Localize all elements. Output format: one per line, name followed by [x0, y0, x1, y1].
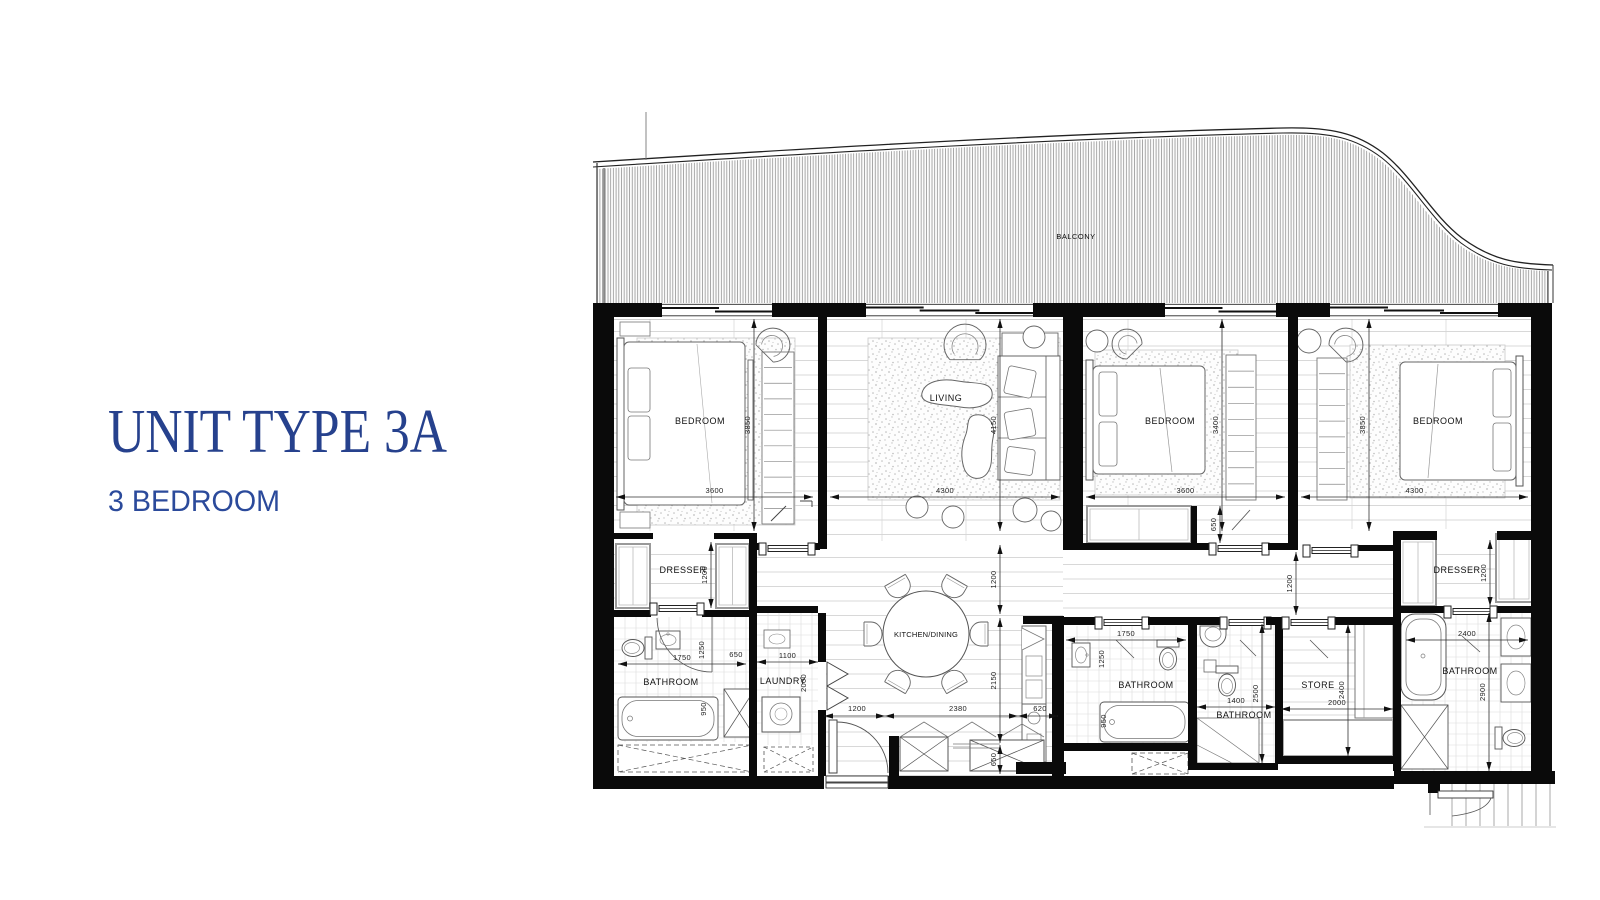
svg-text:1200: 1200 [1479, 564, 1488, 582]
svg-text:BEDROOM: BEDROOM [1145, 416, 1195, 426]
svg-text:1250: 1250 [1097, 650, 1106, 668]
svg-text:1400: 1400 [1227, 696, 1245, 705]
svg-text:2000: 2000 [799, 674, 808, 692]
svg-text:3850: 3850 [743, 416, 752, 434]
svg-text:4300: 4300 [936, 486, 954, 495]
svg-text:3850: 3850 [1358, 416, 1367, 434]
svg-text:BEDROOM: BEDROOM [675, 416, 725, 426]
svg-text:1750: 1750 [1117, 629, 1135, 638]
svg-text:650: 650 [1209, 518, 1218, 531]
svg-text:BEDROOM: BEDROOM [1413, 416, 1463, 426]
svg-text:3400: 3400 [1211, 416, 1220, 434]
svg-text:3600: 3600 [1177, 486, 1195, 495]
svg-text:2380: 2380 [949, 704, 967, 713]
svg-text:BATHROOM: BATHROOM [1118, 680, 1173, 690]
svg-text:2500: 2500 [1251, 685, 1260, 703]
svg-text:3600: 3600 [706, 486, 724, 495]
svg-text:BATHROOM: BATHROOM [1216, 710, 1271, 720]
svg-text:2900: 2900 [1478, 683, 1487, 701]
svg-text:950: 950 [1099, 714, 1108, 727]
svg-text:4300: 4300 [1406, 486, 1424, 495]
svg-text:2400: 2400 [1337, 681, 1346, 699]
svg-text:1100: 1100 [779, 651, 796, 660]
svg-text:650: 650 [729, 650, 742, 659]
svg-text:2400: 2400 [1458, 629, 1476, 638]
svg-text:1200: 1200 [989, 571, 998, 589]
svg-text:1200: 1200 [848, 704, 866, 713]
svg-text:4150: 4150 [989, 416, 998, 434]
svg-text:2150: 2150 [989, 672, 998, 690]
svg-text:1200: 1200 [700, 566, 709, 584]
svg-text:1200: 1200 [1285, 575, 1294, 593]
svg-text:3 BEDROOM: 3 BEDROOM [108, 485, 280, 518]
svg-text:650: 650 [989, 753, 998, 766]
svg-text:950: 950 [699, 702, 708, 715]
svg-text:1250: 1250 [697, 641, 706, 659]
svg-text:STORE: STORE [1301, 680, 1334, 690]
svg-text:BALCONY: BALCONY [1056, 232, 1095, 241]
svg-text:LIVING: LIVING [930, 393, 963, 403]
svg-text:BATHROOM: BATHROOM [643, 677, 698, 687]
svg-text:KITCHEN/DINING: KITCHEN/DINING [894, 630, 958, 639]
svg-text:620: 620 [1033, 704, 1046, 713]
svg-text:UNIT TYPE 3A: UNIT TYPE 3A [108, 398, 447, 466]
svg-text:DRESSER: DRESSER [1433, 565, 1480, 575]
svg-text:1750: 1750 [673, 653, 691, 662]
